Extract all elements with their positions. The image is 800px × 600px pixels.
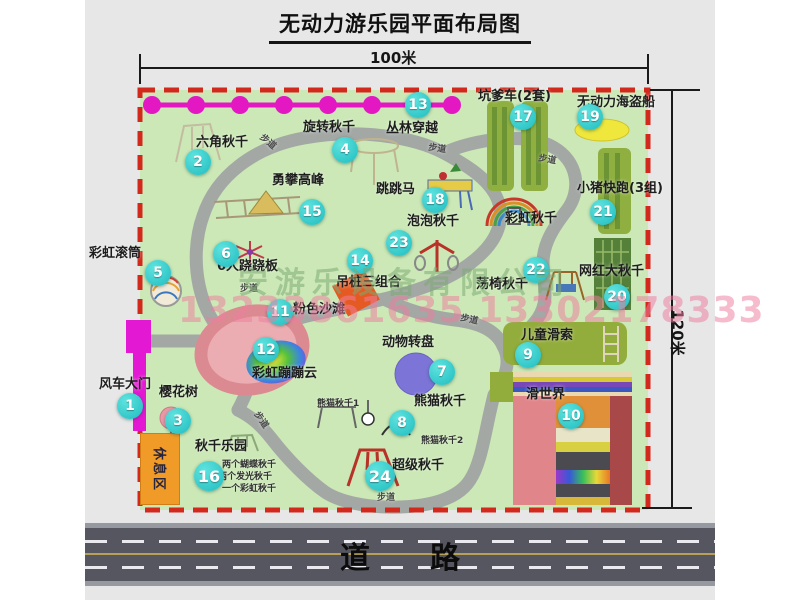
marker-16: 16 bbox=[194, 461, 224, 491]
label-cherry-tree: 樱花树 bbox=[159, 386, 198, 400]
label-big-net-swing: 网红大秋千 bbox=[579, 265, 644, 279]
marker-1: 1 bbox=[117, 393, 143, 419]
marker-15: 15 bbox=[299, 199, 325, 225]
marker-19: 19 bbox=[577, 104, 603, 130]
label-climbing-peak: 勇攀高峰 bbox=[272, 174, 324, 188]
label-hex-swing: 六角秋千 bbox=[196, 136, 248, 150]
rest-area-label: 休息区 bbox=[151, 446, 170, 491]
label-swing-park-note-2: 两个发光秋千 bbox=[218, 473, 272, 483]
label-jungle-crossing: 丛林穿越 bbox=[386, 122, 438, 136]
label-gate: 风车大门 bbox=[99, 378, 151, 392]
label-super-swing: 超级秋千 bbox=[392, 459, 444, 473]
label-panda-swing: 熊猫秋千 bbox=[414, 395, 466, 409]
marker-23: 23 bbox=[386, 230, 412, 256]
label-slide-world: 滑世界 bbox=[526, 388, 565, 402]
marker-6: 6 bbox=[213, 241, 239, 267]
label-rainbow-swing: 彩虹秋千 bbox=[505, 212, 557, 226]
marker-8: 8 bbox=[389, 410, 415, 436]
label-path-7: 步道 bbox=[377, 494, 395, 504]
marker-9: 9 bbox=[515, 342, 541, 368]
width-dimension-label: 100米 bbox=[370, 47, 416, 68]
road: 道 路 bbox=[85, 523, 715, 586]
label-pit-car: 坑爹车(2套) bbox=[478, 90, 551, 104]
label-rotating-swing: 旋转秋千 bbox=[303, 121, 355, 135]
label-swing-chair: 荡椅秋千 bbox=[476, 278, 528, 292]
marker-21: 21 bbox=[590, 199, 616, 225]
height-dimension-label: 120米 bbox=[668, 309, 689, 355]
rest-area-box: 休息区 bbox=[140, 433, 180, 505]
label-hanging-piles: 吊桩三组合 bbox=[336, 276, 401, 290]
label-jumping-horse: 跳跳马 bbox=[376, 183, 415, 197]
label-swing-park-note-1: 两个蝴蝶秋千 bbox=[222, 461, 276, 471]
park-map-drawing bbox=[0, 0, 800, 600]
label-piggy-run: 小猪快跑(3组) bbox=[577, 182, 663, 196]
marker-17: 17 bbox=[510, 104, 536, 130]
marker-7: 7 bbox=[429, 359, 455, 385]
marker-13: 13 bbox=[405, 92, 431, 118]
marker-22: 22 bbox=[523, 257, 549, 283]
label-pink-beach: 粉色沙滩 bbox=[293, 303, 345, 317]
label-bubble-swing: 泡泡秋千 bbox=[407, 215, 459, 229]
road-asphalt: 道 路 bbox=[85, 528, 715, 581]
marker-20: 20 bbox=[604, 284, 630, 310]
marker-11: 11 bbox=[267, 299, 293, 325]
label-panda-swing-2: 熊猫秋千2 bbox=[421, 437, 463, 447]
label-path-4: 步道 bbox=[240, 285, 258, 295]
marker-18: 18 bbox=[422, 187, 448, 213]
label-panda-swing-1: 熊猫秋千1 bbox=[317, 400, 359, 410]
marker-10: 10 bbox=[558, 403, 584, 429]
label-rainbow-roller: 彩虹滚筒 bbox=[89, 247, 141, 261]
marker-2: 2 bbox=[185, 149, 211, 175]
marker-24: 24 bbox=[365, 461, 395, 491]
marker-4: 4 bbox=[332, 137, 358, 163]
label-swing-park: 秋千乐园 bbox=[195, 440, 247, 454]
label-swing-park-note-3: 一个彩虹秋千 bbox=[222, 485, 276, 495]
marker-12: 12 bbox=[253, 337, 279, 363]
road-label: 道 路 bbox=[85, 528, 715, 581]
label-animal-carousel: 动物转盘 bbox=[382, 336, 434, 350]
page-title: 无动力游乐园平面布局图 bbox=[269, 8, 531, 44]
label-rainbow-cloud: 彩虹蹦蹦云 bbox=[252, 367, 317, 381]
marker-3: 3 bbox=[165, 408, 191, 434]
park-layout-screenshot: 无动力游乐园平面布局图 100米 120米 风车大门 六角秋千 樱花树 旋转秋千… bbox=[0, 0, 800, 600]
marker-14: 14 bbox=[347, 248, 373, 274]
marker-5: 5 bbox=[145, 260, 171, 286]
